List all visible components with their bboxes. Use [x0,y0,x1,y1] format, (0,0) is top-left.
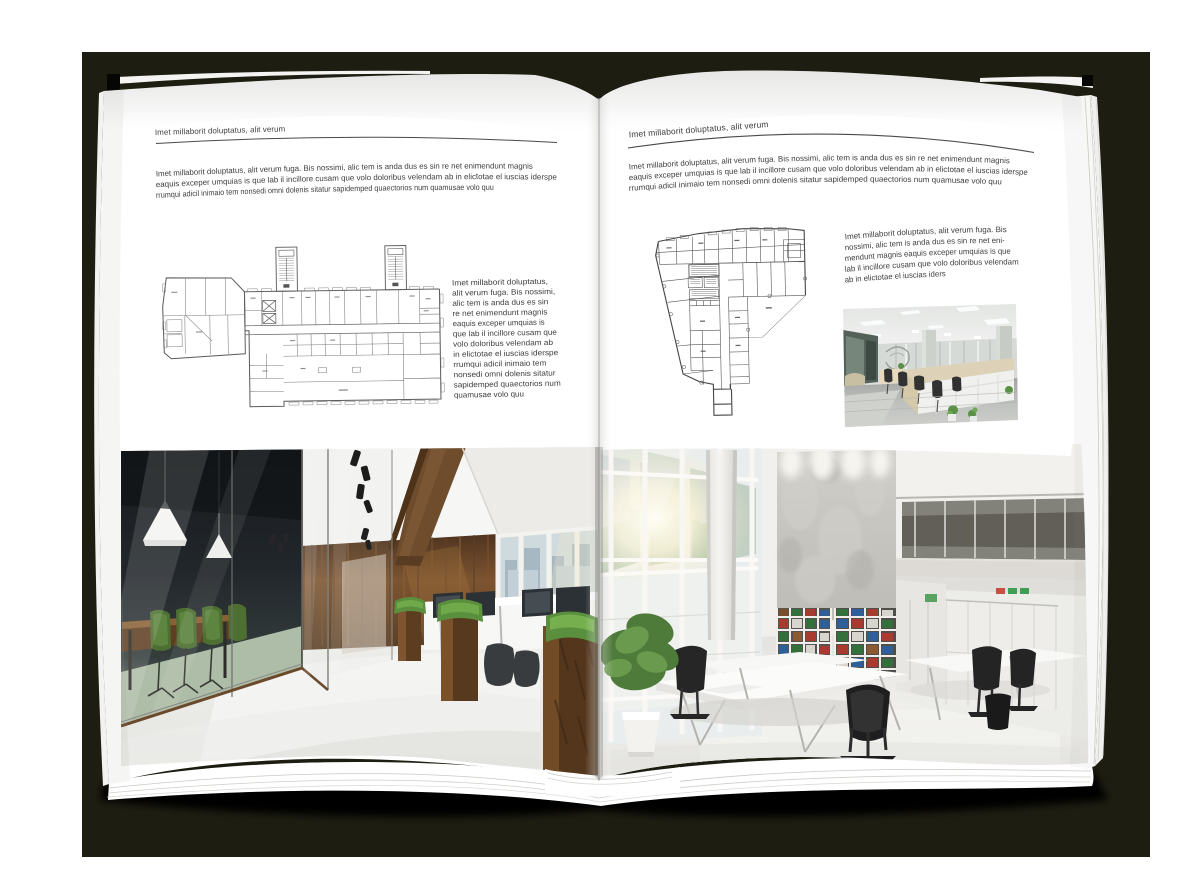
svg-text:quamusae volo quu: quamusae volo quu [454,389,524,399]
svg-text:nonsedi omni dolenis sitatur: nonsedi omni dolenis sitatur [453,368,556,379]
svg-text:volo doloribus velendam ab: volo doloribus velendam ab [453,338,554,349]
svg-text:sapidemped quaectorios num: sapidemped quaectorios num [454,379,561,390]
svg-text:rrumqui adicil inimaio tem: rrumqui adicil inimaio tem [453,358,546,369]
svg-text:re net enimendunt magnis: re net enimendunt magnis [452,307,547,318]
svg-text:in elictotae el iuscias idersp: in elictotae el iuscias iderspe [453,348,558,359]
svg-text:eaquis exceper umquias is: eaquis exceper umquias is [453,318,545,329]
svg-text:alit verum fuga. Bis nossimi,: alit verum fuga. Bis nossimi, [452,287,555,298]
svg-text:que lab il incillore cusam que: que lab il incillore cusam que [453,328,557,339]
svg-text:Imet millaborit doluptatus,: Imet millaborit doluptatus, [452,277,548,288]
svg-text:alic tem is anda dus es sin: alic tem is anda dus es sin [452,297,548,308]
